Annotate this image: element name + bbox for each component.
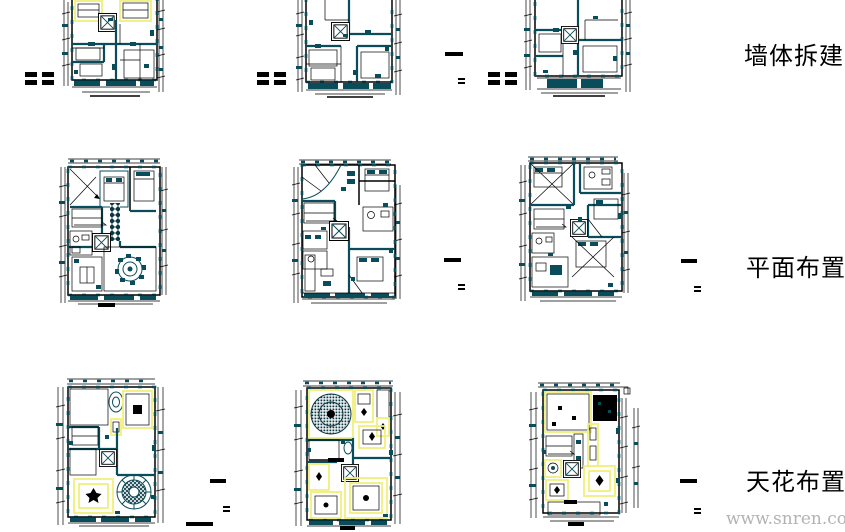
cad-sheet: 墙体拆建 平面布置 天花布置 www.snren.com [0,0,845,532]
scale-mark-dash [445,52,463,56]
row-label-ceiling-layout: 天花布置 [746,462,845,497]
row-label-floor-layout: 平面布置 [746,248,845,283]
floor-plan-demolition-2 [295,0,405,100]
scale-mark-double-equals [25,72,54,85]
scale-mark-dash [681,259,697,263]
floor-plan-demolition-1 [60,0,168,98]
scale-mark-dash [444,258,461,262]
scale-mark-equals [458,284,465,290]
scale-bar [340,526,355,530]
ceiling-plan-3 [528,378,643,528]
scale-bar [98,303,115,307]
scale-mark-equals [223,506,230,512]
floor-plan-layout-3 [518,153,633,305]
scale-bar [568,522,584,526]
floor-plan-layout-1 [58,155,168,307]
floor-plan-demolition-3 [523,0,635,98]
scale-bar [186,522,213,526]
site-watermark: www.snren.com [726,509,845,529]
scale-bar [328,458,344,462]
scale-bar [564,500,577,504]
scale-mark-equals [694,508,701,514]
scale-mark-dash [210,479,226,483]
scale-mark-double-equals [257,72,286,85]
floor-plan-layout-2 [291,157,403,307]
scale-mark-double-equals [488,72,517,85]
scale-mark-equals [694,286,701,292]
scale-mark-equals [458,78,465,84]
row-label-wall-demolition: 墙体拆建 [744,36,844,71]
ceiling-plan-1 [55,375,168,528]
scale-mark-dash [680,479,697,483]
ceiling-plan-2 [293,378,405,530]
